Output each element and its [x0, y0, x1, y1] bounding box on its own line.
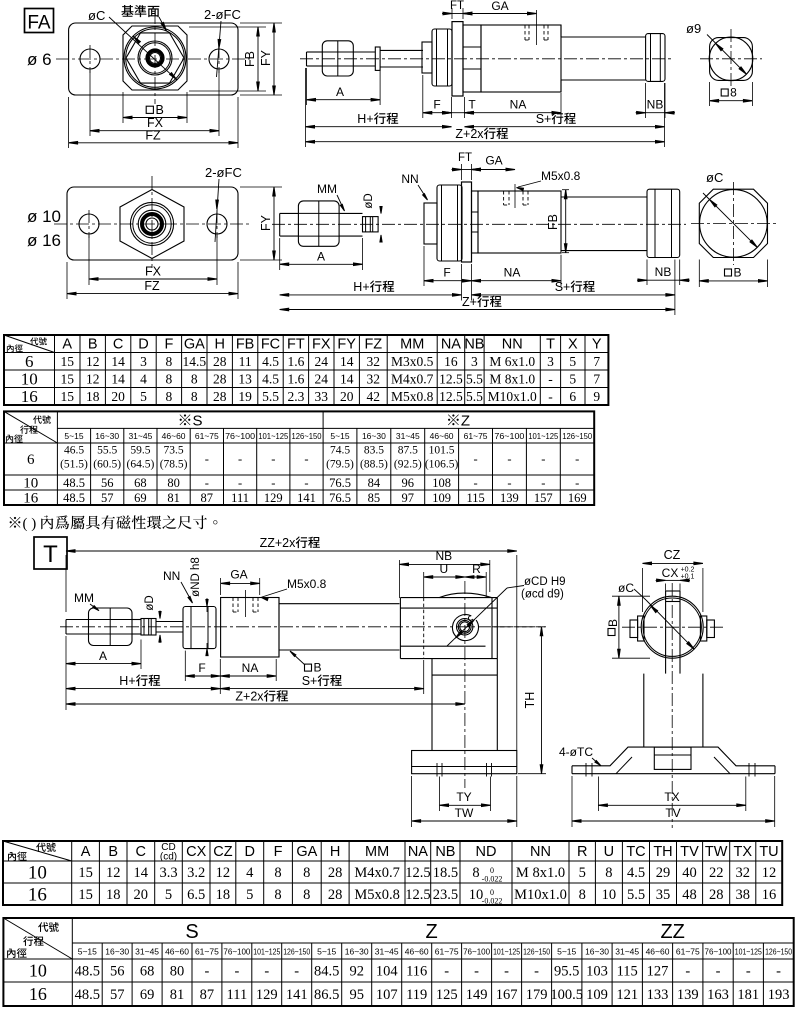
svg-text:86.5: 86.5	[314, 987, 339, 1003]
svg-text:126~150: 126~150	[292, 431, 322, 441]
svg-text:-: -	[575, 452, 579, 466]
svg-text:87: 87	[200, 987, 215, 1003]
svg-text:-: -	[507, 452, 511, 466]
svg-text:M4x0.7: M4x0.7	[354, 865, 400, 881]
svg-text:5.5: 5.5	[466, 389, 483, 404]
svg-text:øC: øC	[88, 8, 105, 23]
svg-text:øD: øD	[363, 193, 375, 208]
svg-text:2-øFC: 2-øFC	[205, 165, 242, 180]
svg-text:B: B	[734, 266, 742, 280]
svg-text:F: F	[433, 98, 440, 112]
svg-text:( ): ( )	[23, 516, 37, 532]
svg-text:101~125: 101~125	[258, 431, 288, 441]
svg-text:B: B	[156, 103, 164, 117]
svg-text:8: 8	[579, 887, 586, 903]
svg-text:B: B	[606, 619, 620, 627]
svg-text:10: 10	[602, 887, 617, 903]
svg-text:12: 12	[216, 865, 231, 881]
svg-text:-: -	[205, 476, 209, 490]
svg-text:6: 6	[27, 452, 35, 468]
svg-text:129: 129	[264, 491, 283, 505]
svg-text:FT: FT	[458, 152, 472, 164]
svg-text:(78.5): (78.5)	[160, 459, 188, 471]
svg-text:10: 10	[23, 476, 38, 492]
svg-text:M4x0.7: M4x0.7	[391, 371, 434, 386]
svg-text:46~60: 46~60	[430, 431, 454, 441]
svg-text:61~75: 61~75	[195, 947, 219, 957]
svg-text:TY: TY	[456, 790, 471, 804]
svg-text:ø 16: ø 16	[27, 231, 61, 250]
svg-text:NN: NN	[163, 569, 180, 583]
svg-text:NA: NA	[441, 337, 461, 353]
svg-text:16: 16	[28, 885, 47, 906]
svg-text:108: 108	[432, 476, 451, 490]
svg-text:U: U	[439, 562, 448, 576]
svg-text:5~15: 5~15	[330, 431, 349, 441]
svg-text:125: 125	[436, 987, 458, 1003]
svg-text:(51.5): (51.5)	[60, 459, 88, 471]
svg-text:GA: GA	[485, 154, 502, 168]
svg-text:R: R	[577, 844, 587, 860]
svg-text:14: 14	[340, 354, 354, 369]
svg-text:NB: NB	[435, 844, 455, 860]
svg-text:TV: TV	[665, 806, 680, 820]
svg-text:M 8x1.0: M 8x1.0	[516, 865, 565, 881]
svg-text:-: -	[541, 476, 545, 490]
svg-text:F: F	[164, 337, 173, 353]
svg-text:15: 15	[60, 389, 74, 404]
svg-text:8: 8	[191, 389, 198, 404]
svg-text:16~30: 16~30	[105, 947, 129, 957]
svg-text:-: -	[776, 963, 781, 979]
svg-text:-: -	[234, 963, 239, 979]
svg-text:31~45: 31~45	[615, 947, 639, 957]
svg-text:5: 5	[569, 371, 576, 386]
svg-text:16: 16	[21, 387, 38, 406]
svg-text:-: -	[716, 963, 721, 979]
svg-text:12: 12	[106, 865, 121, 881]
svg-text:15: 15	[78, 865, 93, 881]
svg-text:-: -	[238, 452, 242, 466]
svg-text:MM: MM	[400, 337, 424, 353]
svg-text:S+: S+	[302, 674, 318, 688]
svg-text:2.3: 2.3	[287, 389, 304, 404]
svg-text:ø 6: ø 6	[27, 50, 52, 69]
svg-text:TH: TH	[653, 844, 672, 860]
svg-text:-: -	[507, 476, 511, 490]
svg-text:20: 20	[340, 389, 354, 404]
svg-text:126~150: 126~150	[523, 947, 550, 957]
svg-text:28: 28	[709, 887, 724, 903]
svg-text:MM: MM	[317, 182, 337, 196]
svg-text:9: 9	[593, 389, 600, 404]
svg-text:46~60: 46~60	[162, 431, 186, 441]
svg-text:87.5: 87.5	[398, 445, 418, 457]
svg-text:5.5: 5.5	[627, 887, 645, 903]
svg-text:57: 57	[110, 987, 125, 1003]
svg-text:6.5: 6.5	[187, 887, 205, 903]
svg-text:MM: MM	[365, 844, 389, 860]
svg-text:11: 11	[239, 354, 252, 369]
svg-text:-: -	[541, 452, 545, 466]
svg-text:12: 12	[86, 371, 100, 386]
svg-text:139: 139	[677, 987, 699, 1003]
svg-text:115: 115	[466, 491, 484, 505]
svg-text:56: 56	[101, 476, 114, 490]
svg-text:-: -	[474, 963, 479, 979]
svg-text:NN: NN	[502, 337, 523, 353]
svg-text:15: 15	[60, 371, 74, 386]
svg-text:1.6: 1.6	[287, 354, 304, 369]
svg-text:3: 3	[471, 354, 478, 369]
svg-text:-: -	[264, 963, 269, 979]
svg-text:76~100: 76~100	[463, 947, 490, 957]
svg-text:56: 56	[110, 963, 125, 979]
svg-text:GA: GA	[491, 0, 508, 13]
svg-text:R: R	[472, 562, 481, 576]
svg-text:U: U	[604, 844, 614, 860]
svg-text:3: 3	[547, 354, 554, 369]
svg-text:61~75: 61~75	[676, 947, 700, 957]
svg-text:NA: NA	[510, 98, 527, 112]
svg-text:-: -	[271, 452, 275, 466]
svg-text:FY: FY	[337, 337, 356, 353]
svg-text:61~75: 61~75	[435, 947, 459, 957]
svg-text:103: 103	[586, 963, 608, 979]
svg-text:M3x0.5: M3x0.5	[391, 354, 434, 369]
svg-text:16: 16	[23, 491, 39, 507]
svg-text:16: 16	[29, 984, 47, 1004]
svg-text:Z: Z	[425, 921, 437, 943]
svg-text:FA: FA	[27, 13, 51, 34]
svg-text:4.5: 4.5	[627, 865, 645, 881]
svg-text:76~100: 76~100	[705, 947, 732, 957]
svg-text:14.5: 14.5	[182, 354, 206, 369]
svg-text:TW: TW	[455, 806, 474, 820]
svg-text:22: 22	[709, 865, 724, 881]
svg-text:B: B	[314, 661, 322, 675]
svg-text:NA: NA	[242, 661, 259, 675]
svg-text:8: 8	[472, 865, 479, 881]
svg-text:84.5: 84.5	[314, 963, 339, 979]
svg-text:FX: FX	[145, 265, 162, 279]
svg-text:73.5: 73.5	[164, 445, 184, 457]
svg-text:3.2: 3.2	[187, 865, 205, 881]
svg-text:ø9: ø9	[686, 21, 701, 36]
svg-text:+0.2: +0.2	[681, 567, 695, 574]
svg-text:74.5: 74.5	[330, 445, 350, 457]
svg-text:32: 32	[367, 371, 381, 386]
svg-text:Z: Z	[461, 413, 470, 430]
svg-text:101~125: 101~125	[735, 947, 762, 957]
svg-text:-: -	[271, 476, 275, 490]
svg-text:14: 14	[111, 371, 125, 386]
svg-text:H+: H+	[357, 112, 373, 126]
svg-text:NN: NN	[530, 844, 551, 860]
svg-text:8: 8	[166, 389, 173, 404]
svg-text:B: B	[88, 337, 98, 353]
svg-text:8: 8	[303, 865, 310, 881]
svg-text:97: 97	[402, 491, 415, 505]
svg-text:96: 96	[402, 476, 415, 490]
svg-text:127: 127	[647, 963, 669, 979]
svg-text:-: -	[685, 963, 690, 979]
svg-text:-0.022: -0.022	[482, 875, 503, 884]
svg-text:31~45: 31~45	[396, 431, 420, 441]
svg-text:4: 4	[246, 865, 254, 881]
svg-text:H+: H+	[353, 280, 369, 294]
svg-text:FB: FB	[243, 51, 257, 67]
svg-text:119: 119	[406, 987, 427, 1003]
svg-text:-: -	[204, 963, 209, 979]
svg-text:14: 14	[111, 354, 125, 369]
svg-text:10: 10	[28, 863, 47, 884]
svg-text:16~30: 16~30	[362, 431, 386, 441]
svg-text:38: 38	[736, 887, 751, 903]
svg-text:8: 8	[303, 887, 310, 903]
svg-text:55.5: 55.5	[97, 445, 117, 457]
svg-text:NN: NN	[401, 172, 418, 186]
svg-text:-: -	[304, 476, 308, 490]
svg-text:-: -	[474, 476, 478, 490]
svg-text:FT: FT	[287, 337, 305, 353]
svg-text:101~125: 101~125	[253, 947, 280, 957]
svg-text:FB: FB	[546, 214, 560, 230]
svg-text:(60.5): (60.5)	[93, 459, 121, 471]
svg-text:D: D	[138, 337, 148, 353]
svg-text:28: 28	[213, 371, 227, 386]
svg-text:A: A	[317, 250, 325, 264]
svg-text:8: 8	[274, 865, 281, 881]
svg-text:FT: FT	[450, 0, 464, 12]
svg-text:-: -	[534, 963, 539, 979]
svg-text:GA: GA	[230, 568, 247, 582]
svg-text:T: T	[468, 98, 476, 112]
svg-text:81: 81	[170, 987, 185, 1003]
svg-text:14: 14	[340, 371, 354, 386]
svg-text:14: 14	[134, 865, 149, 881]
svg-text:A: A	[81, 844, 91, 860]
svg-text:-0.022: -0.022	[482, 897, 503, 906]
svg-text:TH: TH	[523, 692, 537, 709]
svg-text:5: 5	[579, 865, 586, 881]
svg-text:33: 33	[315, 389, 329, 404]
svg-text:87: 87	[201, 491, 214, 505]
svg-text:+0.1: +0.1	[681, 574, 695, 581]
svg-text:8: 8	[274, 887, 281, 903]
svg-text:S: S	[193, 413, 203, 430]
svg-text:29: 29	[656, 865, 671, 881]
svg-text:T: T	[43, 541, 58, 568]
svg-text:-: -	[474, 452, 478, 466]
svg-text:M10x1.0: M10x1.0	[514, 887, 567, 903]
svg-text:92: 92	[349, 963, 364, 979]
svg-text:107: 107	[376, 987, 398, 1003]
svg-text:6: 6	[25, 352, 34, 371]
svg-text:5~15: 5~15	[78, 947, 97, 957]
svg-text:16~30: 16~30	[345, 947, 369, 957]
svg-text:76.5: 76.5	[329, 476, 351, 490]
svg-text:28: 28	[213, 354, 227, 369]
svg-text:5~15: 5~15	[64, 431, 83, 441]
svg-text:CX: CX	[186, 844, 206, 860]
svg-text:16~30: 16~30	[585, 947, 609, 957]
svg-text:169: 169	[568, 491, 587, 505]
svg-text:C: C	[113, 337, 123, 353]
svg-text:Z+2x: Z+2x	[235, 690, 264, 704]
svg-text:126~150: 126~150	[283, 947, 310, 957]
svg-text:-: -	[304, 452, 308, 466]
svg-text:F: F	[198, 661, 205, 675]
svg-text:8: 8	[166, 371, 173, 386]
svg-text:-: -	[548, 371, 553, 386]
svg-text:T: T	[546, 337, 555, 353]
svg-text:46~60: 46~60	[165, 947, 189, 957]
svg-text:CZ: CZ	[664, 548, 681, 562]
svg-text:68: 68	[134, 476, 147, 490]
svg-text:61~75: 61~75	[195, 431, 219, 441]
svg-text:7: 7	[593, 371, 600, 386]
svg-text:GA: GA	[184, 337, 205, 353]
svg-text:8: 8	[605, 865, 612, 881]
svg-text:TW: TW	[705, 844, 728, 860]
svg-text:12.5: 12.5	[405, 865, 430, 881]
svg-text:19: 19	[238, 389, 252, 404]
svg-text:48.5: 48.5	[63, 491, 85, 505]
svg-text:CZ: CZ	[213, 844, 232, 860]
svg-text:FB: FB	[236, 337, 255, 353]
svg-text:181: 181	[737, 987, 759, 1003]
svg-text:42: 42	[367, 389, 381, 404]
svg-text:NA: NA	[504, 266, 521, 280]
svg-text:(cd): (cd)	[160, 852, 177, 863]
svg-text:M5x0.8: M5x0.8	[391, 389, 434, 404]
svg-text:NB: NB	[647, 98, 664, 112]
svg-text:101~125: 101~125	[528, 431, 558, 441]
svg-text:M5x0.8: M5x0.8	[354, 887, 400, 903]
svg-text:A: A	[62, 337, 72, 353]
svg-text:12: 12	[762, 865, 777, 881]
svg-text:46~60: 46~60	[405, 947, 429, 957]
svg-text:141: 141	[286, 987, 308, 1003]
svg-text:5.5: 5.5	[262, 389, 279, 404]
svg-text:5~15: 5~15	[557, 947, 576, 957]
svg-text:(64.5): (64.5)	[127, 459, 155, 471]
svg-text:7: 7	[593, 354, 600, 369]
svg-text:5.5: 5.5	[466, 371, 483, 386]
svg-text:-: -	[575, 476, 579, 490]
svg-text:76~100: 76~100	[225, 431, 255, 441]
svg-text:111: 111	[227, 987, 248, 1003]
svg-text:149: 149	[466, 987, 488, 1003]
svg-text:NA: NA	[408, 844, 428, 860]
svg-text:D: D	[245, 844, 255, 860]
svg-text:23.5: 23.5	[433, 887, 458, 903]
svg-text:2-øFC: 2-øFC	[204, 7, 241, 22]
svg-text:6: 6	[569, 389, 576, 404]
svg-text:øC: øC	[618, 581, 634, 595]
svg-text:TX: TX	[664, 790, 679, 804]
svg-text:(øcd d9): (øcd d9)	[521, 589, 564, 601]
svg-text:40: 40	[682, 865, 697, 881]
svg-text:8: 8	[730, 86, 737, 100]
svg-text:M10x1.0: M10x1.0	[488, 389, 537, 404]
svg-text:FC: FC	[261, 337, 280, 353]
svg-text:(92.5): (92.5)	[394, 459, 422, 471]
svg-text:12: 12	[86, 354, 100, 369]
svg-text:øCD H9: øCD H9	[524, 576, 566, 588]
svg-text:-: -	[205, 452, 209, 466]
svg-text:5~15: 5~15	[317, 947, 336, 957]
svg-text:28: 28	[213, 389, 227, 404]
svg-text:M5x0.8: M5x0.8	[541, 169, 581, 183]
svg-text:31~45: 31~45	[135, 947, 159, 957]
svg-text:121: 121	[616, 987, 638, 1003]
svg-text:69: 69	[134, 491, 147, 505]
svg-text:FX: FX	[312, 337, 331, 353]
svg-text:18.5: 18.5	[433, 865, 458, 881]
svg-text:ZZ: ZZ	[660, 921, 684, 943]
svg-text:46.5: 46.5	[64, 445, 84, 457]
svg-text:(79.5): (79.5)	[326, 459, 354, 471]
svg-text:95.5: 95.5	[554, 963, 579, 979]
svg-text:S+: S+	[536, 112, 552, 126]
svg-text:-: -	[746, 963, 751, 979]
svg-text:32: 32	[367, 354, 381, 369]
svg-text:Y: Y	[592, 337, 602, 353]
svg-text:20: 20	[111, 389, 125, 404]
svg-text:H: H	[214, 337, 224, 353]
svg-text:F: F	[443, 266, 450, 280]
svg-text:FY: FY	[259, 214, 273, 231]
svg-text:101~125: 101~125	[493, 947, 520, 957]
svg-text:12.5: 12.5	[439, 371, 463, 386]
svg-text:C: C	[136, 844, 146, 860]
svg-text:12.5: 12.5	[405, 887, 430, 903]
svg-text:5: 5	[246, 887, 253, 903]
svg-text:16: 16	[762, 887, 777, 903]
svg-text:ø 10: ø 10	[27, 207, 61, 226]
svg-text:M 6x1.0: M 6x1.0	[489, 354, 535, 369]
svg-text:179: 179	[526, 987, 548, 1003]
svg-text:68: 68	[140, 963, 155, 979]
svg-text:H: H	[330, 844, 340, 860]
svg-text:FZ: FZ	[145, 129, 161, 143]
svg-text:18: 18	[86, 389, 100, 404]
svg-text:-: -	[548, 389, 553, 404]
svg-text:12.5: 12.5	[439, 389, 463, 404]
svg-text:3: 3	[140, 354, 147, 369]
svg-text:84: 84	[368, 476, 381, 490]
svg-text:57: 57	[101, 491, 114, 505]
svg-text:193: 193	[768, 987, 790, 1003]
svg-text:16~30: 16~30	[95, 431, 119, 441]
svg-text:48.5: 48.5	[63, 476, 85, 490]
svg-text:TX: TX	[734, 844, 753, 860]
svg-text:28: 28	[328, 887, 343, 903]
svg-text:ZZ+2x: ZZ+2x	[260, 536, 297, 550]
svg-text:FY: FY	[259, 49, 273, 66]
svg-text:115: 115	[617, 963, 638, 979]
svg-text:4.5: 4.5	[262, 371, 279, 386]
svg-text:95: 95	[349, 987, 364, 1003]
svg-text:1.6: 1.6	[287, 371, 304, 386]
svg-text:B: B	[108, 844, 118, 860]
svg-text:-: -	[238, 476, 242, 490]
svg-text:83.5: 83.5	[364, 445, 384, 457]
svg-text:5: 5	[165, 887, 172, 903]
svg-text:32: 32	[736, 865, 751, 881]
